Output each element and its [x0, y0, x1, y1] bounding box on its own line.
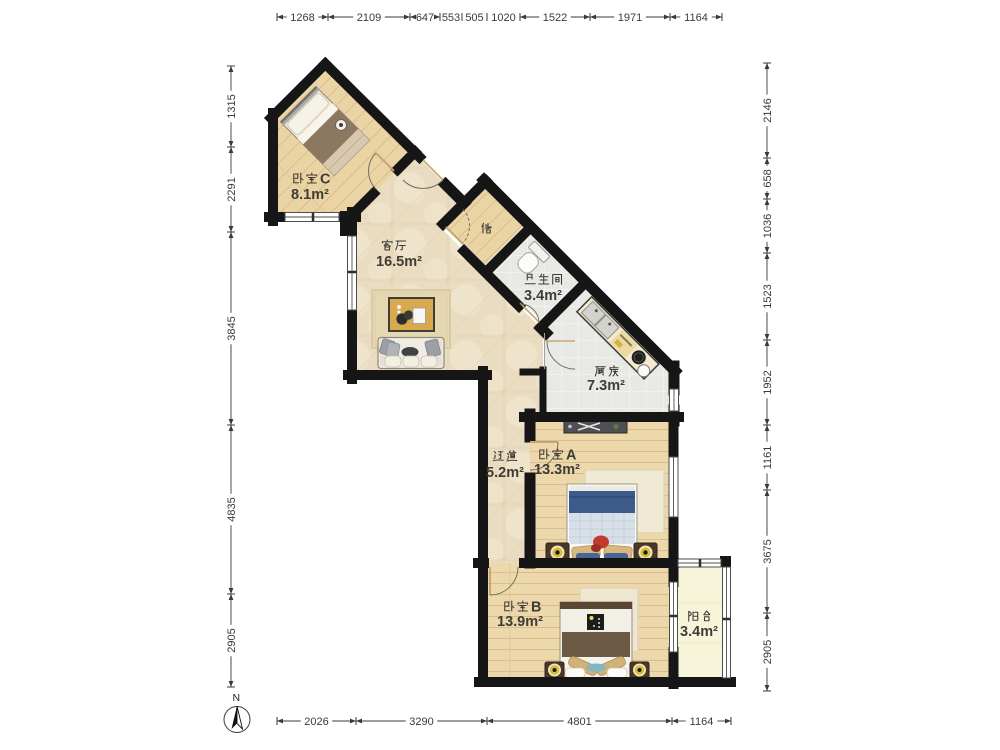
svg-text:3845: 3845 — [226, 316, 238, 340]
svg-text:3.4m²: 3.4m² — [680, 624, 718, 640]
svg-text:1523: 1523 — [762, 284, 774, 308]
svg-text:658: 658 — [762, 169, 774, 187]
svg-text:647: 647 — [416, 12, 434, 24]
svg-text:1164: 1164 — [684, 12, 708, 24]
svg-text:505: 505 — [465, 12, 483, 24]
svg-text:1161: 1161 — [762, 446, 774, 470]
svg-text:1268: 1268 — [290, 12, 314, 24]
svg-text:1522: 1522 — [543, 12, 567, 24]
svg-text:2905: 2905 — [226, 628, 238, 652]
svg-text:4801: 4801 — [567, 716, 591, 728]
svg-text:2109: 2109 — [357, 12, 381, 24]
svg-text:3675: 3675 — [762, 539, 774, 563]
svg-text:3290: 3290 — [409, 716, 433, 728]
svg-text:2026: 2026 — [304, 716, 328, 728]
svg-text:1315: 1315 — [226, 94, 238, 118]
svg-text:2146: 2146 — [762, 98, 774, 122]
svg-text:2905: 2905 — [762, 640, 774, 664]
svg-text:1952: 1952 — [762, 370, 774, 394]
svg-text:C: C — [320, 172, 330, 188]
svg-text:13.9m²: 13.9m² — [497, 614, 543, 630]
svg-text:1164: 1164 — [690, 716, 714, 728]
svg-text:N: N — [233, 692, 241, 704]
svg-text:5.2m²: 5.2m² — [486, 465, 524, 481]
svg-text:1971: 1971 — [618, 12, 642, 24]
svg-text:4835: 4835 — [226, 497, 238, 521]
svg-text:3.4m²: 3.4m² — [524, 288, 562, 304]
svg-text:1036: 1036 — [762, 214, 774, 238]
svg-text:13.3m²: 13.3m² — [534, 462, 580, 478]
svg-text:1020: 1020 — [491, 12, 515, 24]
svg-text:2291: 2291 — [226, 177, 238, 201]
svg-text:8.1m²: 8.1m² — [291, 187, 329, 203]
svg-text:7.3m²: 7.3m² — [587, 378, 625, 394]
svg-text:553: 553 — [442, 12, 460, 24]
svg-text:16.5m²: 16.5m² — [376, 254, 422, 270]
